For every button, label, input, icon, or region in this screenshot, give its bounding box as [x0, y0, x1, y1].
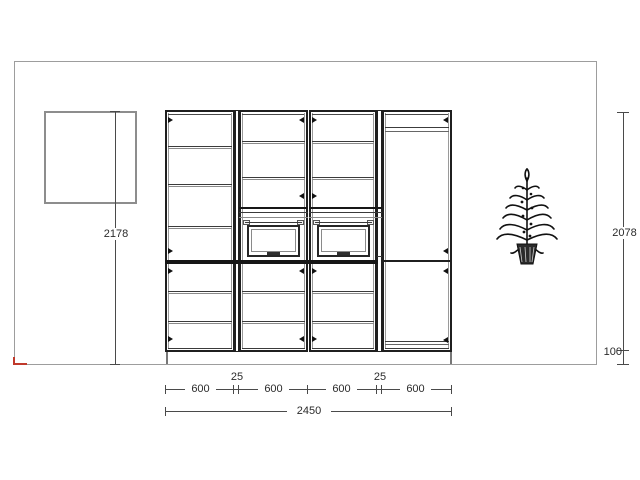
cabinet-unit-4[interactable] — [382, 110, 452, 352]
shelf-line — [168, 291, 232, 294]
elevation-drawing: 2178 2078 100 — [0, 0, 640, 480]
dimension-tick — [165, 385, 166, 394]
dimension-label-segment: 600 — [185, 383, 216, 395]
unit-bottom-edge — [312, 348, 374, 349]
unit-top-edge — [168, 114, 232, 115]
unit-bottom-edge — [385, 348, 449, 349]
dimension-tick — [307, 385, 308, 394]
shelf-line — [312, 321, 374, 324]
door-hinge-arrow-icon — [443, 268, 448, 274]
shelf-line — [242, 321, 305, 324]
shelf-line — [168, 146, 232, 149]
dimension-label-body-height: 2078 — [606, 227, 640, 239]
shelf-line — [242, 291, 305, 294]
unit-bottom-edge — [168, 348, 232, 349]
appliance-rail — [245, 222, 302, 223]
dimension-tick — [451, 407, 452, 416]
dimension-tick — [376, 385, 377, 394]
potted-plant-icon[interactable] — [496, 168, 558, 266]
dimension-tick — [110, 111, 120, 112]
door-hinge-arrow-icon — [443, 337, 448, 343]
door-hinge-arrow-icon — [312, 336, 317, 342]
door-hinge-arrow-icon — [168, 268, 173, 274]
door-hinge-arrow-icon — [168, 117, 173, 123]
shelf-line — [242, 177, 305, 180]
door-hinge-arrow-icon — [299, 268, 304, 274]
door-hinge-arrow-icon — [312, 268, 317, 274]
plinth-side — [166, 352, 168, 364]
niche-top-line — [309, 207, 377, 209]
shelf-line — [168, 321, 232, 324]
filler-line — [377, 212, 382, 213]
origin-marker — [13, 363, 27, 365]
door-split-line — [382, 260, 452, 262]
shelf-line — [168, 226, 232, 229]
shelf-line — [312, 177, 374, 180]
dimension-tick — [617, 112, 629, 113]
shelf-line — [312, 141, 374, 144]
filler-line — [377, 207, 382, 209]
dimension-tick — [238, 385, 239, 394]
unit-top-edge — [242, 114, 305, 115]
dimension-tick — [617, 364, 629, 365]
dimension-tick — [233, 385, 234, 394]
dimension-label-segment: 600 — [258, 383, 289, 395]
door-hinge-arrow-icon — [299, 336, 304, 342]
niche-line — [239, 217, 308, 218]
dimension-label-total-width: 2450 — [287, 405, 331, 417]
top-shelf-band — [385, 127, 449, 132]
door-hinge-arrow-icon — [168, 248, 173, 254]
unit-top-edge — [385, 114, 449, 115]
niche-top-line — [239, 207, 308, 209]
shelf-line — [242, 141, 305, 144]
door-hinge-arrow-icon — [443, 117, 448, 123]
dimension-label-segment: 25 — [370, 371, 390, 383]
appliance-front — [251, 229, 296, 252]
dimension-tick — [165, 407, 166, 416]
unit-top-edge — [312, 114, 374, 115]
dimension-label-segment: 600 — [326, 383, 357, 395]
shelf-line — [312, 291, 374, 294]
appliance-front — [321, 229, 366, 252]
origin-marker-vertical — [13, 357, 15, 365]
niche-line — [239, 212, 308, 213]
appliance-logo — [337, 252, 350, 255]
door-hinge-arrow-icon — [299, 193, 304, 199]
dimension-label-plinth-height: 100 — [598, 346, 623, 358]
dimension-label-segment: 25 — [227, 371, 247, 383]
door-hinge-arrow-icon — [312, 117, 317, 123]
window[interactable] — [44, 111, 137, 204]
dimension-label-segment: 600 — [400, 383, 431, 395]
niche-line — [309, 217, 377, 218]
filler-line — [377, 256, 382, 257]
appliance-rail — [315, 222, 372, 223]
niche-line — [309, 212, 377, 213]
filler-line — [377, 217, 382, 218]
dimension-tick — [381, 385, 382, 394]
plinth-side — [450, 352, 452, 364]
unit-bottom-edge — [242, 348, 305, 349]
dimension-tick — [451, 385, 452, 394]
shelf-line — [168, 184, 232, 187]
appliance-logo — [267, 252, 280, 255]
door-hinge-arrow-icon — [312, 193, 317, 199]
dimension-tick — [110, 364, 120, 365]
door-hinge-arrow-icon — [168, 336, 173, 342]
bottom-shelf-band — [385, 341, 449, 345]
door-hinge-arrow-icon — [299, 117, 304, 123]
door-hinge-arrow-icon — [443, 248, 448, 254]
carcass-split-line — [165, 260, 378, 264]
dimension-label-left-height: 2178 — [98, 228, 134, 240]
